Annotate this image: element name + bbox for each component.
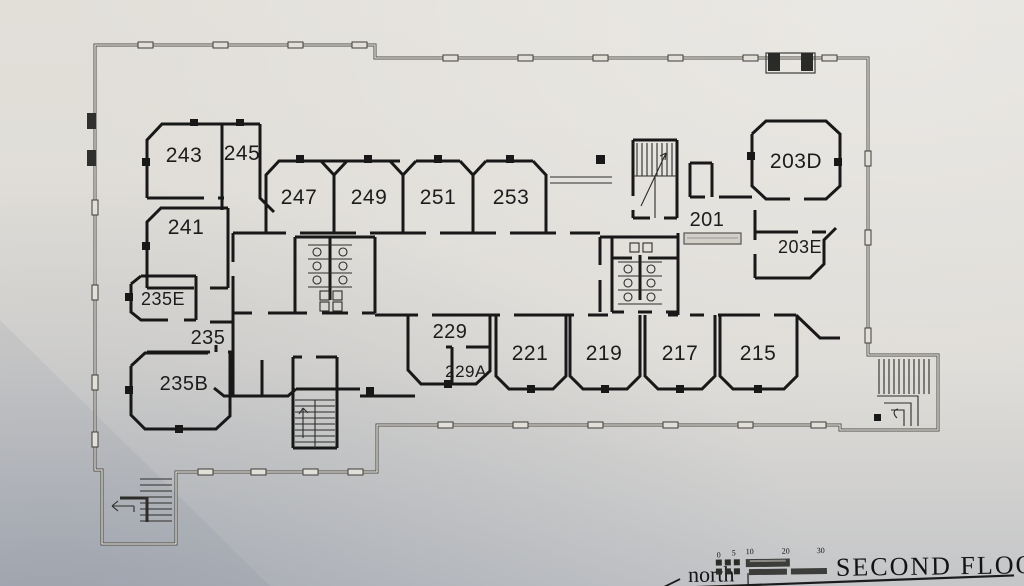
display-case: [684, 233, 741, 244]
room-label-203d: 203D: [770, 150, 822, 173]
room-label-229: 229: [433, 321, 468, 343]
floor-title: SECOND FLOOR: [836, 550, 1024, 582]
scale-tick-0: 0: [717, 551, 721, 560]
room-label-235: 235: [191, 327, 226, 349]
scale-bar-inner-line: [750, 561, 786, 562]
room-label-219: 219: [586, 342, 623, 365]
room-label-229a: 229A: [445, 362, 487, 381]
scale-tick-20: 20: [782, 547, 790, 556]
room-label-221: 221: [512, 342, 549, 365]
floor-plan-photo: 243 245 247 249 251 253 241 235E 235 235…: [0, 0, 1024, 586]
room-label-249: 249: [351, 186, 388, 209]
scale-tick-5: 5: [732, 548, 736, 557]
room-label-245: 245: [224, 142, 261, 165]
room-label-241: 241: [168, 216, 205, 239]
room-label-203e: 203E: [778, 237, 822, 257]
room-label-247: 247: [281, 186, 318, 209]
floor-plan-svg: 243 245 247 249 251 253 241 235E 235 235…: [0, 0, 1024, 586]
room-label-253: 253: [493, 186, 530, 209]
scale-tick-10: 10: [746, 547, 754, 556]
room-label-235b: 235B: [160, 373, 209, 395]
room-label-217: 217: [662, 342, 699, 365]
room-label-251: 251: [420, 186, 457, 209]
room-label-243: 243: [166, 144, 203, 167]
room-label-235e: 235E: [141, 289, 185, 309]
room-label-215: 215: [740, 342, 777, 365]
scale-tick-30: 30: [817, 546, 825, 555]
room-label-201: 201: [690, 209, 725, 231]
